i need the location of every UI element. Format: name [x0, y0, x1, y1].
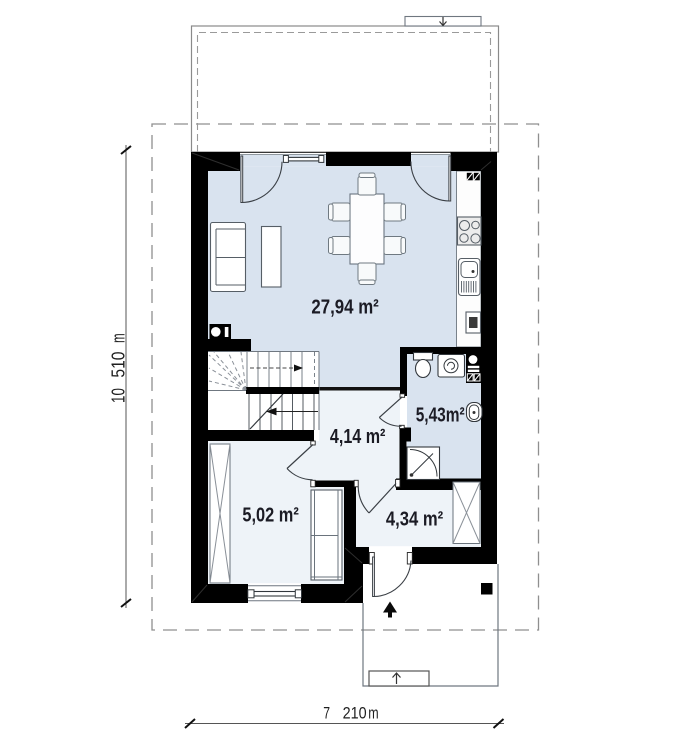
svg-text:m: m — [108, 333, 129, 343]
svg-text:510: 510 — [108, 352, 129, 378]
svg-text:7: 7 — [323, 703, 330, 722]
svg-text:m: m — [368, 703, 378, 722]
svg-text:4,34 m²: 4,34 m² — [386, 508, 444, 530]
svg-text:4,14 m²: 4,14 m² — [330, 426, 386, 448]
svg-text:10: 10 — [108, 388, 129, 403]
svg-text:5,43m²: 5,43m² — [416, 405, 465, 427]
svg-text:27,94 m²: 27,94 m² — [311, 297, 379, 319]
svg-text:5,02 m²: 5,02 m² — [242, 505, 299, 527]
svg-text:210: 210 — [343, 703, 367, 722]
